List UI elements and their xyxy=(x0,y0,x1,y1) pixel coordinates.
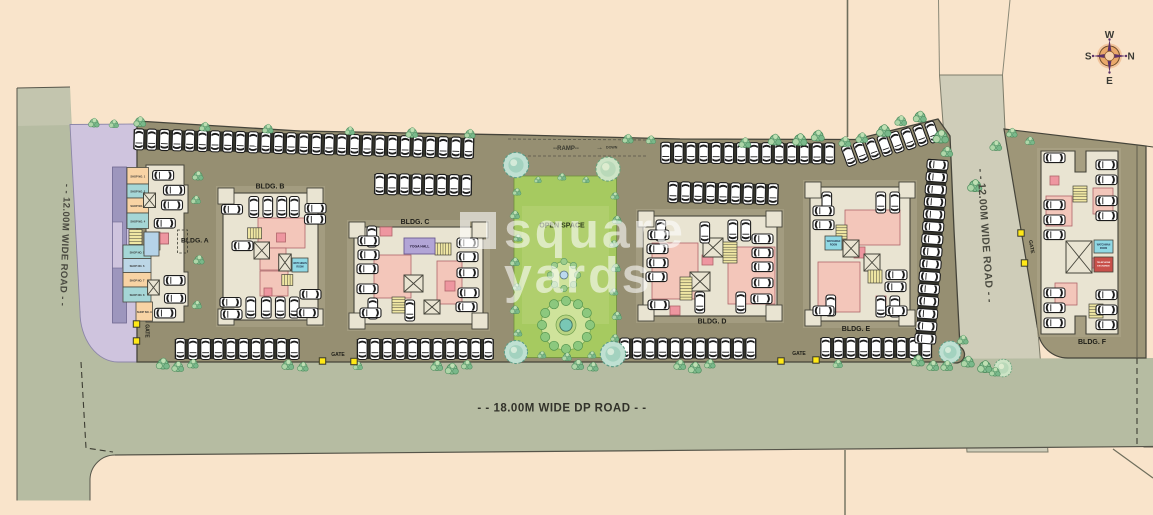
svg-text:S: S xyxy=(1085,52,1092,63)
svg-text:ROOM: ROOM xyxy=(296,266,303,268)
svg-text:BLDG. D: BLDG. D xyxy=(698,319,727,326)
svg-text:BLDG. B: BLDG. B xyxy=(256,184,285,191)
svg-text:SHOP NO. 6: SHOP NO. 6 xyxy=(130,264,145,268)
svg-text:ROOM: ROOM xyxy=(1100,248,1107,250)
svg-text:E: E xyxy=(1106,76,1113,87)
svg-text:→: → xyxy=(596,145,603,152)
svg-text:ROOM: ROOM xyxy=(830,244,837,246)
svg-text:WATCHMAN: WATCHMAN xyxy=(1097,244,1111,247)
svg-text:N: N xyxy=(1128,52,1135,63)
svg-text:GATE: GATE xyxy=(331,352,345,358)
svg-text:BLDG. E: BLDG. E xyxy=(842,326,871,333)
svg-text:SHOP NO. 8: SHOP NO. 8 xyxy=(130,293,145,297)
svg-text:DOWN: DOWN xyxy=(606,146,618,150)
svg-text:SHOP NO. 4: SHOP NO. 4 xyxy=(130,219,145,223)
svg-text:SHOP NO. 7: SHOP NO. 7 xyxy=(130,278,145,282)
svg-text:yards: yards xyxy=(504,248,652,304)
svg-text:--RAMP--: --RAMP-- xyxy=(553,146,579,152)
svg-text:WATCHMAN: WATCHMAN xyxy=(827,240,841,243)
svg-text:SHOP NO. 9: SHOP NO. 9 xyxy=(137,310,152,314)
svg-text:TELEPHONE: TELEPHONE xyxy=(1097,262,1111,264)
svg-text:BLDG. C: BLDG. C xyxy=(401,219,430,226)
svg-text:SHOP NO. 1: SHOP NO. 1 xyxy=(130,174,145,178)
svg-text:WATCHMAN: WATCHMAN xyxy=(293,262,307,265)
svg-text:BLDG. F: BLDG. F xyxy=(1078,339,1107,346)
svg-text:SHOP NO. 5: SHOP NO. 5 xyxy=(130,250,145,254)
svg-text:GATE: GATE xyxy=(792,351,806,357)
svg-text:YOGA HALL: YOGA HALL xyxy=(410,245,430,249)
svg-text:EXCHANGE: EXCHANGE xyxy=(1097,264,1110,267)
svg-text:BLDG. A: BLDG. A xyxy=(181,238,209,245)
svg-text:W: W xyxy=(1105,30,1115,41)
svg-text:GATE: GATE xyxy=(144,324,150,338)
svg-text:- - 18.00M WIDE DP ROAD - -: - - 18.00M WIDE DP ROAD - - xyxy=(477,403,646,415)
